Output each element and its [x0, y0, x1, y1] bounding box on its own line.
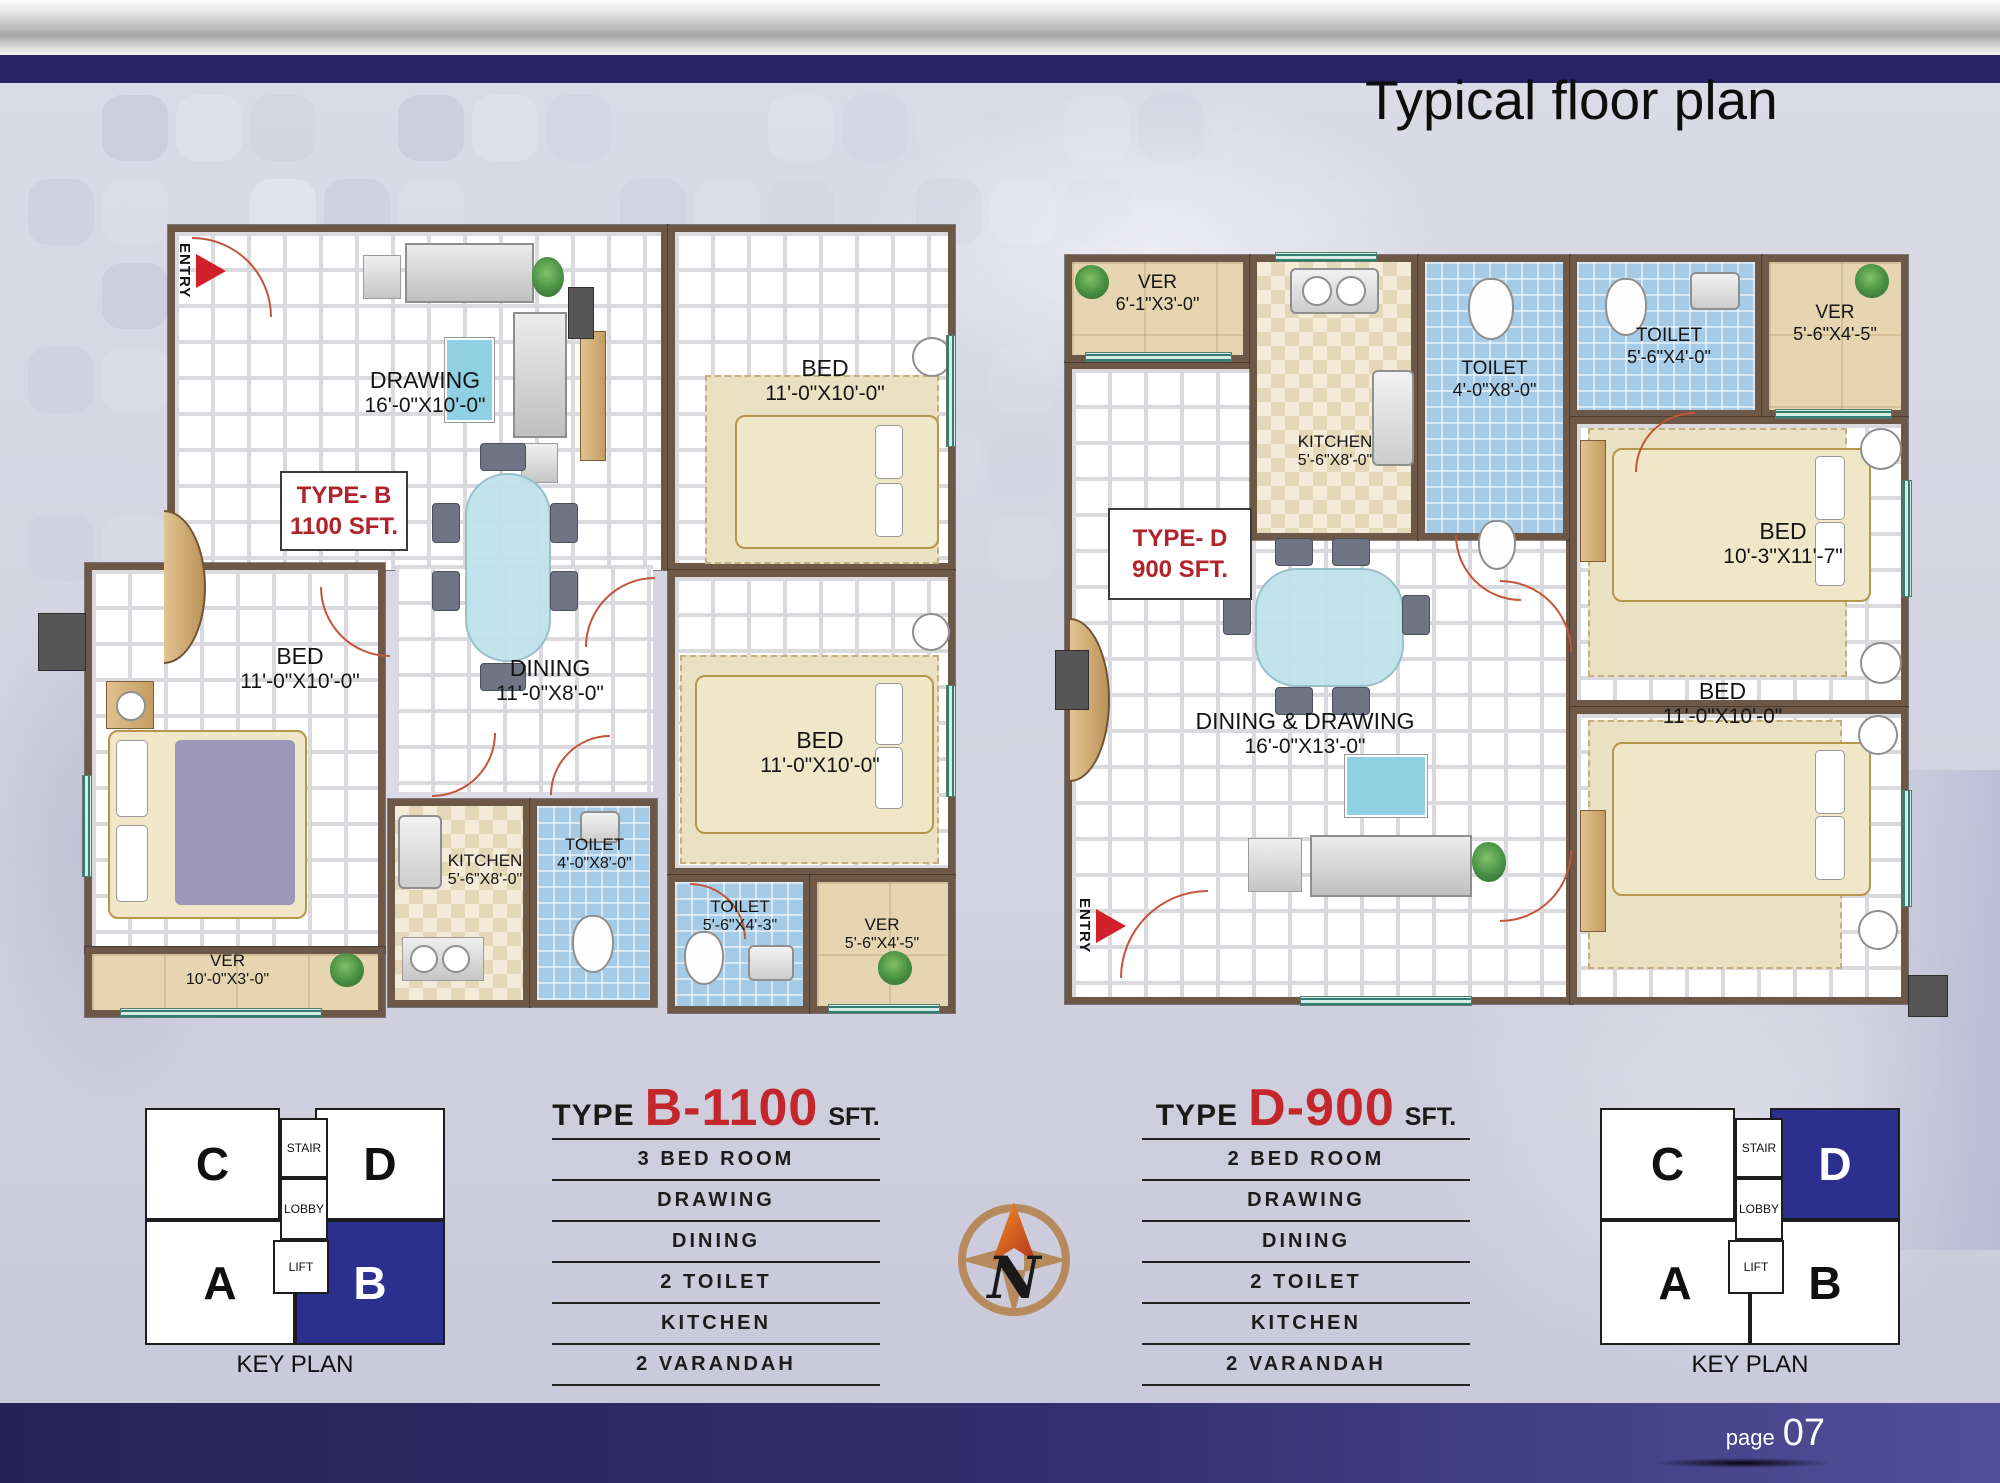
chair	[550, 503, 578, 543]
key-plan-right: C D A B STAIR LOBBY LIFT KEY PLAN	[1600, 1103, 1900, 1383]
chair	[1275, 538, 1313, 566]
wardrobe-cabinet	[580, 331, 606, 461]
wash-basin	[748, 945, 794, 981]
lamp	[1858, 715, 1898, 755]
compass-north-letter: N	[985, 1244, 1042, 1312]
entry-marker: ENTRY	[1076, 898, 1126, 953]
spec-item: DRAWING	[552, 1181, 880, 1222]
background-square	[1212, 95, 1278, 161]
chair	[1402, 595, 1430, 635]
room-label-ver-right: VER5'-6"X4'-5"	[812, 915, 952, 954]
spec-item: 2 BED ROOM	[1142, 1140, 1470, 1181]
pillow	[1815, 750, 1845, 814]
keyplan-lobby: LOBBY	[280, 1178, 328, 1240]
tv-unit	[1345, 755, 1427, 817]
background-square	[990, 431, 1056, 497]
keyplan-stair: STAIR	[280, 1118, 328, 1178]
type-label-box-b: TYPE- B1100 SFT.	[280, 471, 408, 551]
room-label-toilet1: TOILET4'-0"X8'-0"	[532, 835, 657, 874]
page-number-underline	[1655, 1458, 1830, 1468]
spec-title-d: TYPE D-900 SFT.	[1142, 1085, 1470, 1138]
background-square	[546, 95, 612, 161]
chair	[550, 571, 578, 611]
room-label-ver-top: VER6'-1"X3'-0"	[1075, 272, 1240, 316]
background-square	[916, 95, 982, 161]
room-label-kitchen: KITCHEN5'-6"X8'-0"	[1255, 432, 1415, 471]
background-square	[398, 95, 464, 161]
spec-item: 2 TOILET	[1142, 1263, 1470, 1304]
room-label-ver-bottom: VER10'-0"X3'-0"	[125, 951, 330, 990]
burner	[1336, 276, 1366, 306]
spec-item: 2 TOILET	[552, 1263, 880, 1304]
entry-label: ENTRY	[176, 243, 193, 298]
column-block	[568, 287, 594, 339]
keyplan-unit-c: C	[145, 1108, 280, 1220]
keyplan-title: KEY PLAN	[145, 1351, 445, 1379]
wardrobe-cabinet	[1580, 440, 1606, 562]
keyplan-unit-d-highlighted: D	[1770, 1108, 1900, 1220]
column-block	[1055, 650, 1089, 710]
chair	[1223, 595, 1251, 635]
background-square	[1286, 179, 1352, 245]
keyplan-unit-c: C	[1600, 1108, 1735, 1220]
side-table	[363, 255, 401, 299]
keyplan-lobby: LOBBY	[1735, 1178, 1783, 1240]
room-label-ver-right: VER5'-6"X4'-5"	[1760, 302, 1910, 346]
footer-bar	[0, 1403, 2000, 1483]
room-label-toilet2: TOILET5'-6"X4'-3"	[675, 897, 805, 936]
plant-decor	[532, 257, 564, 297]
window	[82, 775, 92, 877]
burner	[410, 945, 438, 973]
window	[1085, 352, 1232, 362]
room-label-bed-top: BED10'-3"X11'-7"	[1668, 518, 1898, 570]
background-square	[768, 95, 834, 161]
background-square	[990, 347, 1056, 413]
keyplan-title: KEY PLAN	[1600, 1351, 1900, 1379]
room-label-dining-drawing: DINING & DRAWING16'-0"X13'-0"	[1130, 708, 1480, 760]
pillow	[875, 425, 903, 479]
background-square	[842, 95, 908, 161]
room-label-bed-left: BED11'-0"X10'-0"	[175, 643, 425, 695]
background-square	[1138, 95, 1204, 161]
spec-item: 2 VARANDAH	[1142, 1345, 1470, 1386]
pillow	[116, 825, 148, 902]
pillow	[1815, 816, 1845, 880]
spec-list-type-d: TYPE D-900 SFT. 2 BED ROOM DRAWING DININ…	[1142, 1085, 1470, 1386]
chair	[1332, 538, 1370, 566]
background-square	[102, 95, 168, 161]
page-title: Typical floor plan	[1365, 68, 1835, 132]
lamp	[1858, 910, 1898, 950]
window	[120, 1008, 322, 1018]
entry-arrow-icon	[196, 254, 226, 288]
room-label-toilet2: TOILET5'-6"X4'-0"	[1583, 325, 1755, 369]
room-label-bed-right: BED11'-0"X10'-0"	[715, 727, 925, 779]
entry-arrow-icon	[1096, 909, 1126, 943]
background-square	[1064, 95, 1130, 161]
column-block	[1908, 975, 1948, 1017]
column-block	[38, 613, 86, 671]
bed-furniture	[735, 415, 939, 549]
toilet-commode	[684, 931, 724, 985]
wardrobe-cabinet	[1580, 810, 1606, 932]
chair	[432, 571, 460, 611]
spec-item: KITCHEN	[552, 1304, 880, 1345]
sofa-furniture	[1310, 835, 1472, 897]
chair	[432, 503, 460, 543]
bed-blanket	[175, 740, 295, 905]
background-square	[176, 95, 242, 161]
burner	[1302, 276, 1332, 306]
background-square	[472, 95, 538, 161]
background-square	[1064, 179, 1130, 245]
keyplan-lift: LIFT	[1728, 1240, 1784, 1294]
room-label-drawing: DRAWING16'-0"X10'-0"	[305, 367, 545, 419]
top-metallic-bar	[0, 0, 2000, 55]
spec-item: DINING	[1142, 1222, 1470, 1263]
spec-item: 2 VARANDAH	[552, 1345, 880, 1386]
pillow	[116, 740, 148, 817]
window	[1902, 790, 1912, 907]
spec-item: KITCHEN	[1142, 1304, 1470, 1345]
room-label-bed-top: BED11'-0"X10'-0"	[720, 355, 930, 407]
lamp	[1860, 642, 1902, 684]
pillow	[1815, 456, 1845, 520]
toilet-commode	[572, 915, 614, 973]
room-label-toilet1: TOILET4'-0"X8'-0"	[1422, 358, 1567, 402]
toilet-commode	[1468, 278, 1514, 340]
plant-decor	[330, 953, 364, 987]
room-label-dining: DINING11'-0"X8'-0"	[425, 655, 675, 707]
spec-item: 3 BED ROOM	[552, 1140, 880, 1181]
background-square	[250, 95, 316, 161]
window	[946, 685, 956, 797]
lamp	[912, 613, 950, 651]
background-square	[990, 515, 1056, 581]
wash-basin	[1690, 272, 1740, 310]
page-number-value: 07	[1783, 1412, 1825, 1455]
page-word: page	[1726, 1425, 1775, 1451]
lamp	[1860, 428, 1902, 470]
floor-plan-type-d: ENTRY VER6'-1"X3'-0" KITCHEN5'-6"X8'-0" …	[1060, 250, 1950, 1015]
keyplan-stair: STAIR	[1735, 1118, 1783, 1178]
dining-table	[1255, 568, 1404, 687]
plant-decor	[1855, 264, 1889, 298]
spec-item: DINING	[552, 1222, 880, 1263]
plant-decor	[878, 951, 912, 985]
entry-marker: ENTRY	[176, 243, 226, 298]
spec-title-b: TYPE B-1100 SFT.	[552, 1085, 880, 1138]
pillow	[875, 483, 903, 537]
window	[828, 1004, 940, 1014]
window	[1300, 996, 1472, 1006]
window	[1775, 409, 1892, 419]
room-label-bed-bottom: BED11'-0"X10'-0"	[1605, 678, 1840, 730]
window	[1275, 252, 1377, 262]
type-label-box-d: TYPE- D900 SFT.	[1108, 508, 1252, 600]
spec-list-type-b: TYPE B-1100 SFT. 3 BED ROOM DRAWING DINI…	[552, 1085, 880, 1386]
entry-label: ENTRY	[1076, 898, 1093, 953]
side-table	[1248, 838, 1302, 892]
page-number: page 07	[1726, 1412, 1825, 1455]
keyplan-lift: LIFT	[273, 1240, 329, 1294]
lamp	[116, 691, 146, 721]
north-compass-icon: N	[952, 1196, 1076, 1327]
chair	[480, 443, 526, 471]
window	[1902, 480, 1912, 597]
spec-item: DRAWING	[1142, 1181, 1470, 1222]
key-plan-left: C D A B STAIR LOBBY LIFT KEY PLAN	[145, 1103, 445, 1383]
keyplan-unit-d: D	[315, 1108, 445, 1220]
sofa-furniture	[405, 243, 534, 303]
background-square	[990, 179, 1056, 245]
dining-table	[465, 473, 551, 662]
floor-plan-type-b: ENTRY DRAWING16'-0"X10'-0" BED11'-0"X10'…	[80, 215, 970, 1027]
burner	[442, 945, 470, 973]
window	[946, 335, 956, 447]
